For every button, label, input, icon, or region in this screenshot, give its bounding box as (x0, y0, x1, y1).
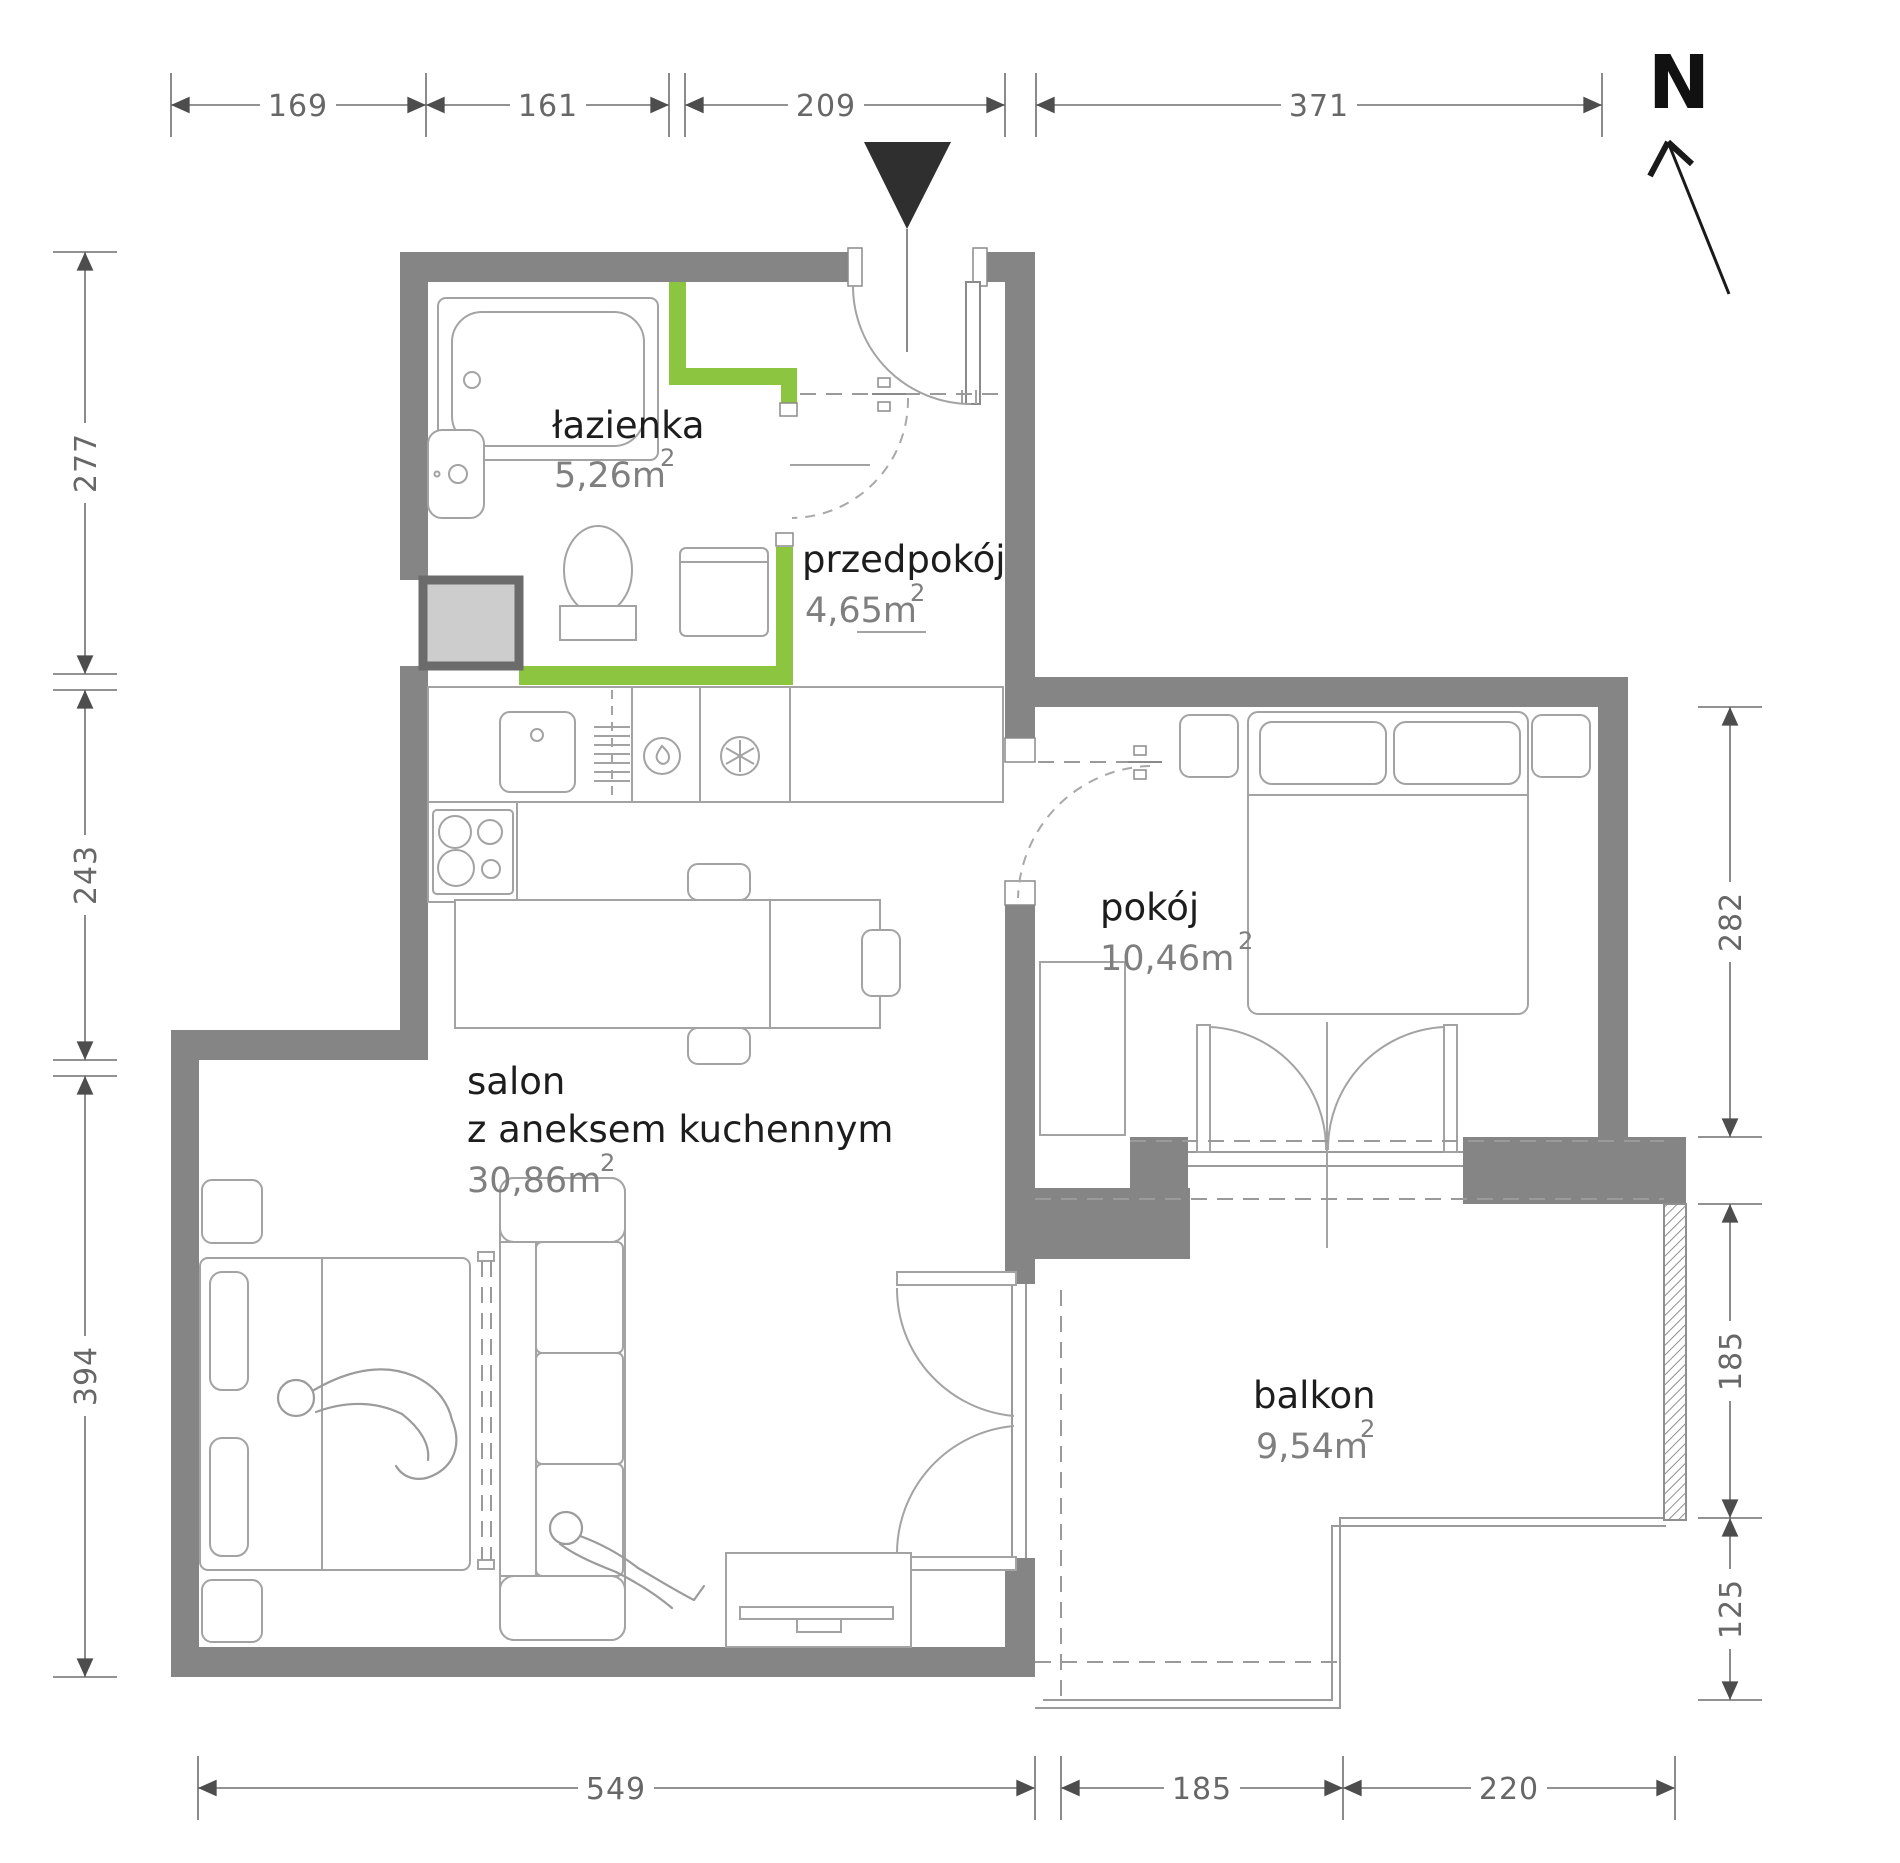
north-arrow-head-icon (1650, 142, 1692, 176)
rug-runner (478, 1252, 494, 1569)
wall-left-kitchen (400, 666, 428, 1030)
sink-tap (435, 472, 440, 477)
entrance-triangle-icon (864, 142, 951, 229)
salon-balcony-door-arc-bottom (897, 1426, 1014, 1554)
door-jamb-pokoj-top (1005, 738, 1035, 762)
wall-bottom-salon (171, 1647, 1035, 1677)
pokoj-door-swing-arc (1018, 766, 1150, 898)
wall-pokoj-right (1598, 707, 1628, 1137)
balcony-outline (1035, 1518, 1666, 1708)
sofa-cushion-1 (536, 1242, 623, 1353)
pokoj-door-hinge-symbol (1128, 746, 1162, 779)
dim-left-394: 394 (69, 1346, 104, 1406)
bathroom-door-hinge-symbol (872, 378, 906, 411)
sofa (500, 1178, 625, 1640)
wall-hall-right (1005, 282, 1035, 738)
area-sup-salon: 2 (600, 1149, 615, 1177)
sofa-armrest-bottom (500, 1576, 625, 1640)
north-label: N (1648, 40, 1710, 126)
pokoj-pillow-2 (1394, 722, 1520, 784)
label-pokoj: pokój (1100, 886, 1199, 929)
salon-balcony-door-leaf-bottom (897, 1557, 1016, 1570)
sink-drain (449, 465, 467, 483)
chair-bottom (688, 1028, 750, 1064)
area-salon: 30,86m (467, 1161, 601, 1201)
chair-top (688, 864, 750, 900)
floor-plan-svg: N łazienka 5,26m 2 przedpokój 4,65m 2 po… (0, 0, 1900, 1863)
bathtub-drain (464, 372, 480, 388)
green-wall-vertical-top (669, 282, 686, 372)
door-jamb-pokoj-bottom (1005, 881, 1035, 905)
dining-table (455, 900, 880, 1028)
area-lazienka: 5,26m (554, 456, 666, 496)
door-jamb-entry-right (973, 248, 987, 286)
french-door-arc-left (1210, 1027, 1326, 1150)
area-balkon: 9,54m (1256, 1427, 1368, 1467)
dim-top-371: 371 (1289, 89, 1349, 124)
kitchen-sink-drain (531, 729, 543, 741)
area-sup-lazienka: 2 (660, 444, 675, 472)
wall-salon-right-upper (1005, 905, 1035, 1284)
salon-balcony-door-leaf-top (897, 1272, 1016, 1285)
label-salon-line2: z aneksem kuchennym (467, 1108, 893, 1151)
wall-top-left (400, 252, 862, 282)
dim-right: 282 185 125 (1698, 707, 1762, 1700)
door-jamb-bath-top (780, 403, 797, 416)
tv-screen (740, 1607, 893, 1619)
french-door-arc-right (1328, 1027, 1444, 1150)
wall-left-upper (400, 282, 428, 580)
nightstand-salon-top (202, 1180, 262, 1243)
salon-balcony-door-arc-top (897, 1288, 1014, 1416)
dim-top-161: 161 (518, 89, 578, 124)
tv-console (726, 1553, 911, 1647)
dim-right-185: 185 (1714, 1331, 1749, 1391)
dim-right-282: 282 (1714, 892, 1749, 952)
dim-bottom-549: 549 (586, 1772, 646, 1807)
label-salon-line1: salon (467, 1060, 565, 1103)
area-pokoj: 10,46m (1100, 939, 1234, 979)
installation-shaft (423, 580, 519, 666)
door-jamb-bath-bottom (776, 533, 793, 546)
tv-base (797, 1619, 841, 1632)
salon-bed-pillow-2 (210, 1438, 248, 1556)
salon-furniture (200, 1178, 911, 1647)
wall-step-connector (171, 1030, 428, 1060)
green-wall-horizontal-bottom (519, 666, 793, 685)
nightstand-salon-bottom (202, 1580, 262, 1642)
dim-left-243: 243 (69, 845, 104, 905)
toilet-tank (560, 606, 636, 640)
nightstand-pokoj-right (1532, 715, 1590, 777)
entry-door-swing-arc (853, 286, 971, 404)
kitchen-sink (500, 712, 575, 792)
dishwasher-symbol (644, 738, 680, 774)
label-lazienka: łazienka (552, 404, 705, 447)
green-wall-stub-upper (781, 383, 797, 403)
area-sup-balkon: 2 (1360, 1415, 1375, 1443)
area-sup-przedpokoj: 2 (910, 579, 925, 607)
dim-bottom-220: 220 (1479, 1772, 1539, 1807)
wall-balcony-left-step (1130, 1137, 1188, 1193)
sofa-back (500, 1242, 536, 1576)
dim-top: 169 161 209 371 (171, 73, 1602, 137)
dim-right-125: 125 (1714, 1579, 1749, 1639)
dim-bottom: 549 185 220 (198, 1756, 1675, 1820)
sofa-cushion-2 (536, 1353, 623, 1464)
pokoj-wardrobe (1040, 962, 1125, 1135)
toilet-bowl (564, 526, 632, 614)
floor-plan-canvas: N łazienka 5,26m 2 przedpokój 4,65m 2 po… (0, 0, 1900, 1863)
balcony-railing-hatched (1664, 1204, 1686, 1520)
chair-right (862, 930, 900, 996)
label-balkon: balkon (1253, 1374, 1376, 1417)
entry-door-leaf (966, 282, 980, 404)
bathroom-door-swing-arc (792, 398, 908, 518)
wall-salon-right-lower (1005, 1558, 1035, 1677)
dim-left: 277 243 394 (53, 252, 117, 1677)
north-compass: N (1648, 40, 1729, 294)
pokoj-pillow-1 (1260, 722, 1386, 784)
french-door-leaf-left (1197, 1025, 1210, 1152)
area-sup-pokoj: 2 (1238, 927, 1253, 955)
balcony-outline-inner (1043, 1526, 1666, 1700)
north-arrow-line (1668, 142, 1729, 294)
salon-bed-pillow-1 (210, 1272, 248, 1390)
green-wall-horizontal-top (669, 368, 797, 385)
door-jamb-entry-left (848, 248, 862, 286)
french-door-leaf-right (1444, 1025, 1457, 1152)
wall-top-stub (987, 252, 1035, 282)
dim-top-209: 209 (796, 89, 856, 124)
dim-left-277: 277 (69, 433, 104, 493)
label-przedpokoj: przedpokój (802, 538, 1006, 581)
wall-left-salon (171, 1060, 199, 1677)
wall-pokoj-top (1035, 677, 1628, 707)
entrance-marker (864, 142, 951, 352)
kitchen-furniture (428, 687, 1003, 1064)
area-przedpokoj: 4,65m (805, 591, 917, 631)
green-wall-vertical-lower (776, 547, 793, 667)
dim-bottom-185: 185 (1172, 1772, 1232, 1807)
wall-balcony-right-chunk (1463, 1137, 1686, 1204)
dim-top-169: 169 (268, 89, 328, 124)
nightstand-pokoj-left (1180, 715, 1238, 777)
